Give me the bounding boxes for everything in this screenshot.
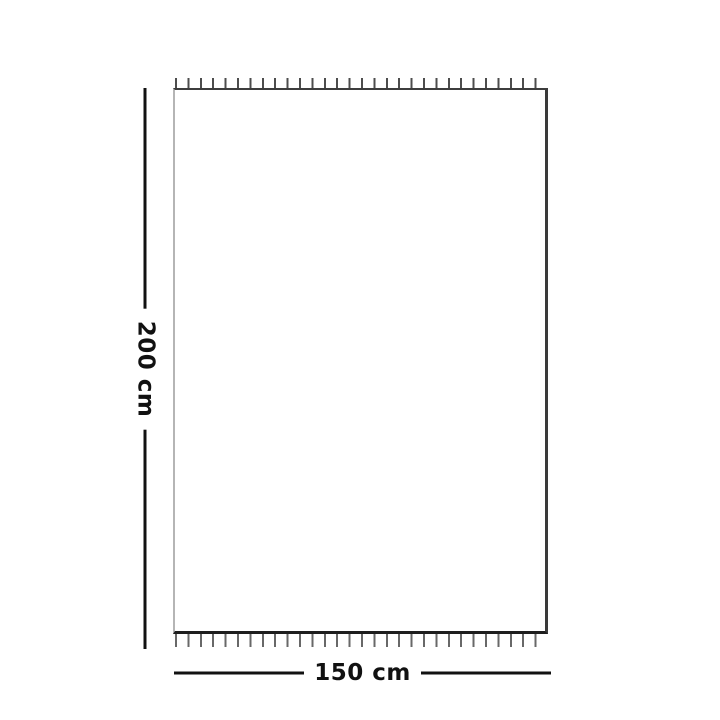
height-dimension: 200 cm xyxy=(129,88,161,649)
width-dimension-label: 150 cm xyxy=(304,660,421,686)
fringe-bottom-edge xyxy=(175,634,547,647)
product-rectangle-outline xyxy=(173,88,548,634)
width-dimension: 150 cm xyxy=(174,658,551,688)
height-dimension-label: 200 cm xyxy=(132,308,158,429)
fringe-top-edge xyxy=(175,78,547,88)
dimension-diagram: 200 cm 150 cm xyxy=(0,0,720,720)
